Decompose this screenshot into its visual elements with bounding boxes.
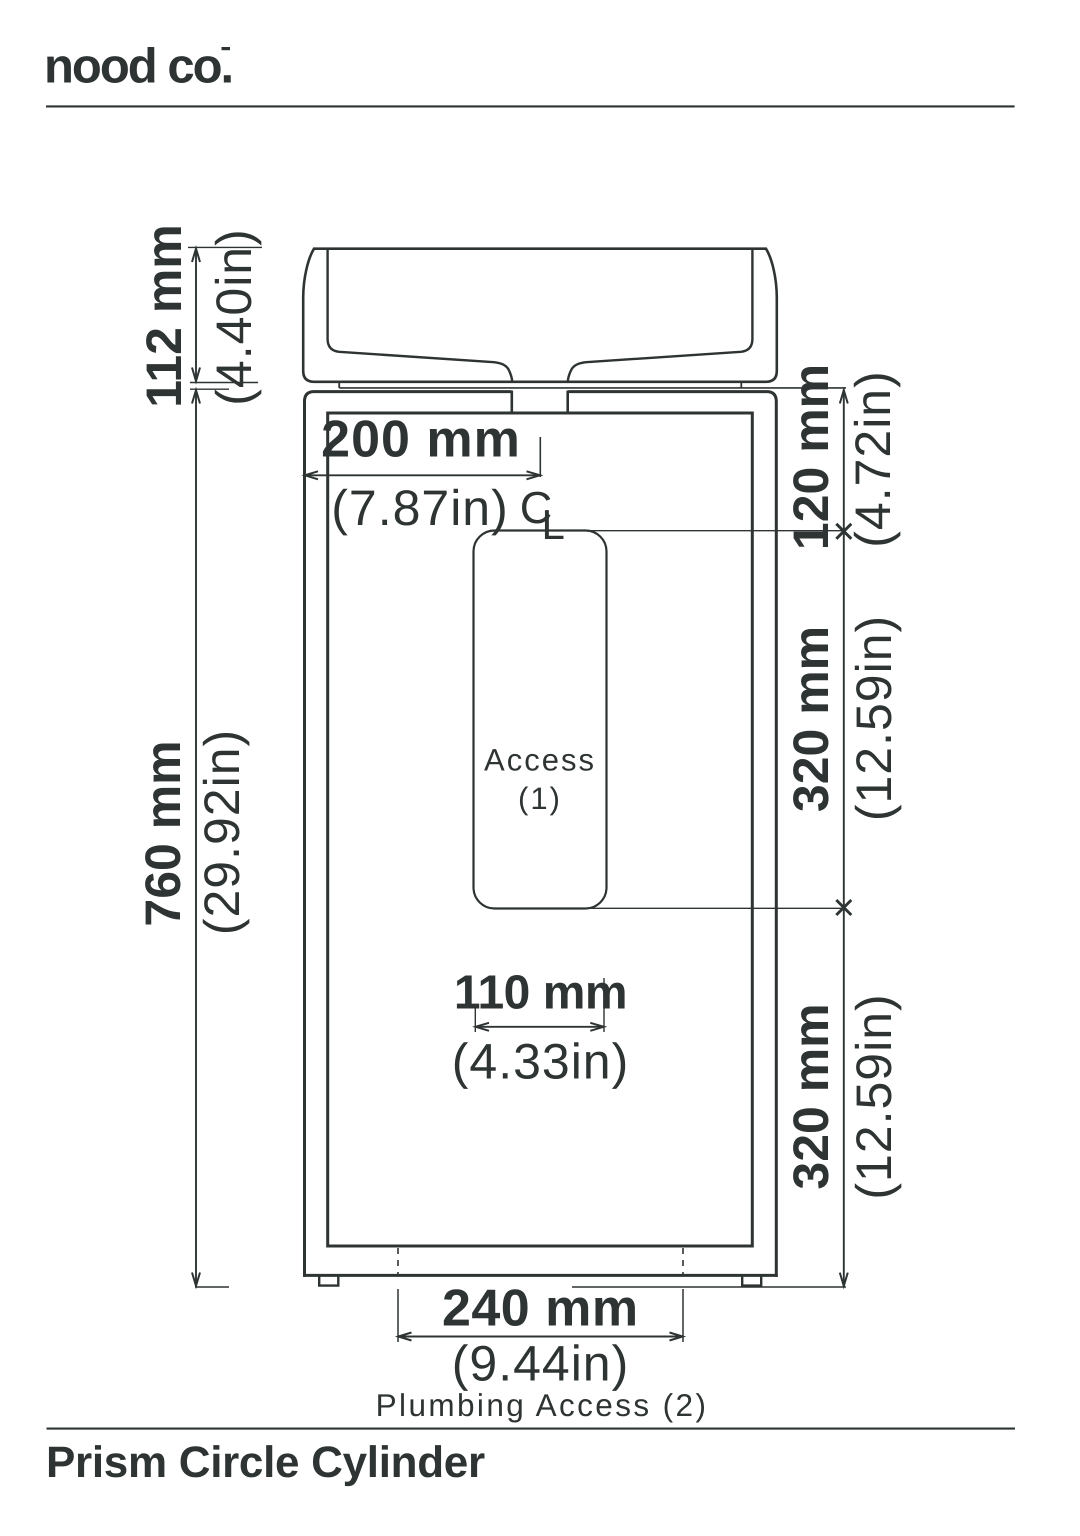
svg-text:112 mm: 112 mm [136, 224, 192, 407]
svg-text:(9.44in): (9.44in) [452, 1336, 630, 1392]
svg-text:200 mm: 200 mm [321, 411, 521, 469]
svg-text:110 mm: 110 mm [454, 967, 627, 1020]
svg-text:760 mm: 760 mm [135, 740, 191, 926]
svg-text:(7.87in): (7.87in) [331, 480, 509, 536]
svg-text:(29.92in): (29.92in) [194, 729, 250, 935]
svg-text:(1): (1) [518, 781, 562, 816]
svg-text:240 mm: 240 mm [442, 1280, 639, 1338]
svg-text:Prism Circle Cylinder: Prism Circle Cylinder [46, 1438, 485, 1487]
svg-text:(4.40in): (4.40in) [206, 228, 262, 406]
svg-text:nood co.: nood co. [44, 40, 232, 94]
svg-text:120 mm: 120 mm [783, 364, 839, 550]
svg-text:(4.72in): (4.72in) [845, 370, 901, 548]
svg-text:320 mm: 320 mm [783, 1003, 839, 1189]
svg-text:L: L [542, 501, 565, 548]
svg-text:(12.59in): (12.59in) [846, 615, 902, 821]
svg-text:Plumbing Access (2): Plumbing Access (2) [376, 1387, 709, 1423]
svg-text:(4.33in): (4.33in) [452, 1034, 630, 1090]
svg-text:Access: Access [484, 743, 596, 778]
svg-text:320 mm: 320 mm [783, 626, 839, 812]
svg-text:(12.59in): (12.59in) [846, 993, 902, 1199]
